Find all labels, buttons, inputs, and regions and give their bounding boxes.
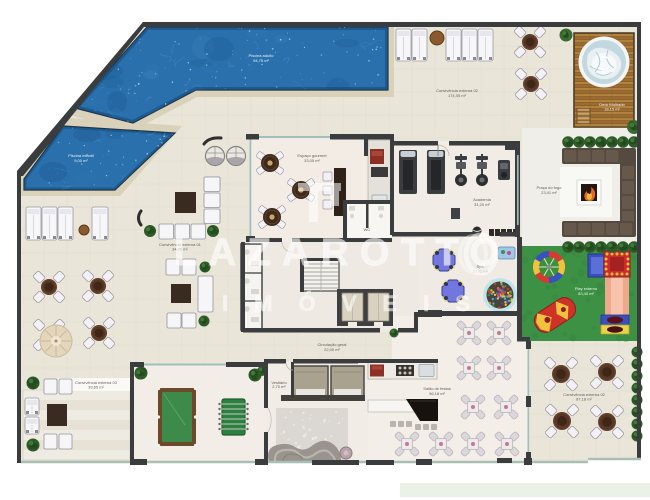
svg-text:96,18 m²: 96,18 m² bbox=[429, 391, 445, 396]
svg-text:39,65 m²: 39,65 m² bbox=[88, 385, 104, 390]
svg-text:22,00 m²: 22,00 m² bbox=[324, 347, 340, 352]
svg-text:33,05 m²: 33,05 m² bbox=[304, 158, 320, 163]
svg-text:18,15 m²: 18,15 m² bbox=[604, 107, 620, 112]
svg-text:31,20 m²: 31,20 m² bbox=[474, 202, 490, 207]
svg-text:174,05 m²: 174,05 m² bbox=[448, 93, 467, 98]
svg-text:LAZAROTTO: LAZAROTTO bbox=[174, 232, 499, 274]
svg-text:87,18 m²: 87,18 m² bbox=[576, 397, 592, 402]
svg-text:23,41 m²: 23,41 m² bbox=[541, 190, 557, 195]
svg-text:83,40 m²: 83,40 m² bbox=[578, 291, 594, 296]
svg-text:2,70 m²: 2,70 m² bbox=[272, 384, 286, 389]
svg-text:9,00 m²: 9,00 m² bbox=[74, 158, 88, 163]
svg-text:94,75 m²: 94,75 m² bbox=[253, 58, 269, 63]
